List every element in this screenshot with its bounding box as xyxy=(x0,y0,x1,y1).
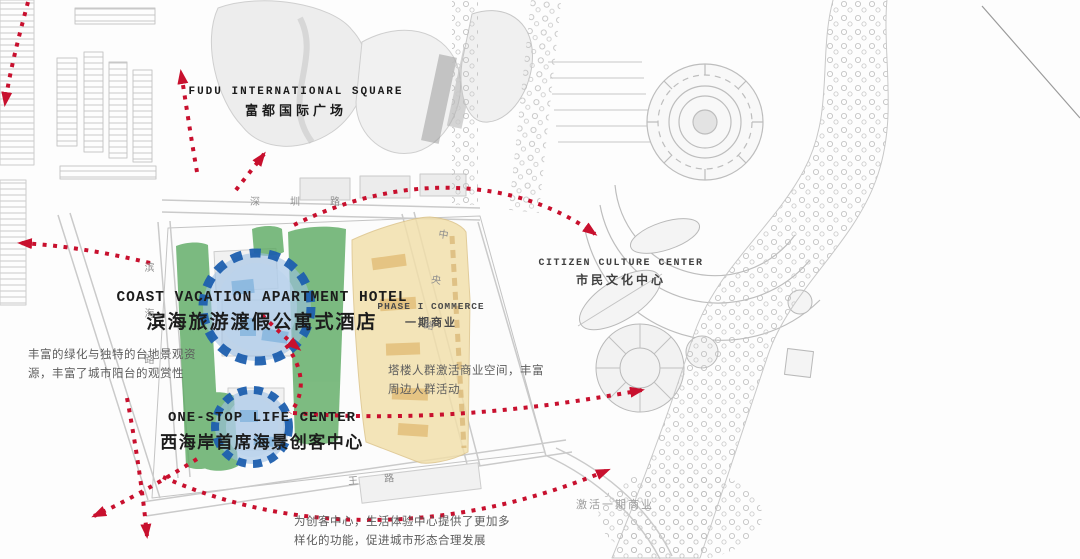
note-terrace-line1: 丰富的绿化与独特的台地景观资 xyxy=(28,349,196,361)
citizen-culture-label-en: CITIZEN CULTURE CENTER xyxy=(538,258,703,269)
phase1-commerce-zone xyxy=(352,217,470,463)
note-maker-line1: 为创客中心，生活体验中心提供了更加多 xyxy=(294,516,510,528)
coast-hotel-label: COAST VACATION APARTMENT HOTEL 滨海旅游渡假公寓式… xyxy=(116,290,407,334)
fudu-square-label-en: FUDU INTERNATIONAL SQUARE xyxy=(188,86,403,98)
note-tower-line1: 塔楼人群激活商业空间，丰富 xyxy=(388,365,544,377)
road-label-binhai: 滨海路 xyxy=(140,262,155,400)
onestop-center-label-zh: 西海岸首席海景创客中心 xyxy=(160,428,364,453)
citizen-culture-label-zh: 市民文化中心 xyxy=(538,271,703,288)
citizen-culture-label: CITIZEN CULTURE CENTER 市民文化中心 xyxy=(538,258,703,288)
note-tower-activation: 塔楼人群激活商业空间，丰富 周边人群活动 xyxy=(388,362,544,400)
coast-hotel-label-zh: 滨海旅游渡假公寓式酒店 xyxy=(116,307,407,334)
fudu-square-label: FUDU INTERNATIONAL SQUARE 富都国际广场 xyxy=(188,86,403,119)
fudu-square-label-zh: 富都国际广场 xyxy=(188,100,403,119)
onestop-center-label-en: ONE-STOP LIFE CENTER xyxy=(160,410,364,426)
arrow-to-fudu-square xyxy=(236,154,264,190)
note-terrace-landscape: 丰富的绿化与独特的台地景观资 源，丰富了城市阳台的观赏性 xyxy=(28,346,196,384)
masterplan-diagram: FUDU INTERNATIONAL SQUARE 富都国际广场 COAST V… xyxy=(0,0,1080,559)
note-terrace-line2: 源，丰富了城市阳台的观赏性 xyxy=(28,368,184,380)
note-maker-line2: 样化的功能，促进城市形态合理发展 xyxy=(294,535,486,547)
coast-hotel-label-en: COAST VACATION APARTMENT HOTEL xyxy=(116,290,407,306)
note-activate-phase1: 激活一期商业 xyxy=(576,496,654,512)
onestop-center-label: ONE-STOP LIFE CENTER 西海岸首席海景创客中心 xyxy=(160,410,364,453)
note-tower-line2: 周边人群活动 xyxy=(388,384,460,396)
note-maker-center: 为创客中心，生活体验中心提供了更加多 样化的功能，促进城市形态合理发展 xyxy=(294,513,510,551)
road-label-shenzhen: 深圳路 xyxy=(250,193,370,208)
